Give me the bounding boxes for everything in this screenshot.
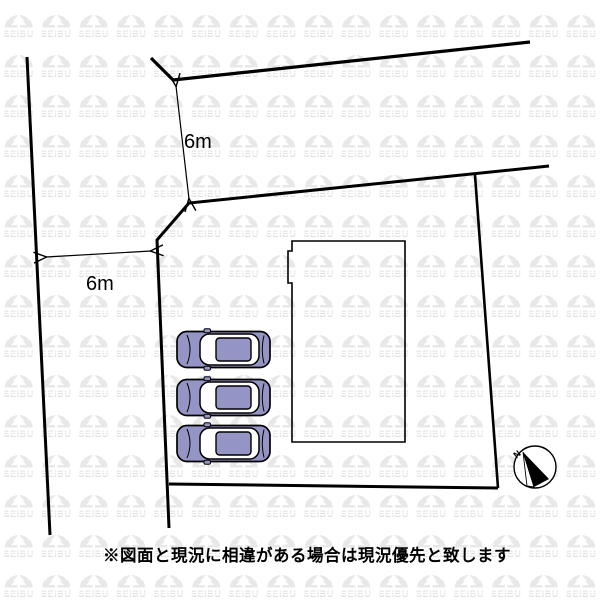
watermark-tile: [490, 175, 524, 200]
watermark-tile: [77, 335, 111, 360]
watermark-tile: [152, 15, 186, 40]
watermark-tile: [152, 295, 186, 320]
watermark-tile: [265, 215, 299, 240]
watermark-tile: [340, 15, 374, 40]
watermark-tile: [302, 415, 336, 440]
watermark-tile: [190, 495, 224, 520]
watermark-tile: [415, 375, 449, 400]
watermark-tile: [490, 55, 524, 80]
watermark-tile: [452, 415, 486, 440]
watermark-tile: [415, 215, 449, 240]
watermark-tile: [40, 575, 74, 600]
watermark-tile: [152, 95, 186, 120]
watermark-tile: [77, 175, 111, 200]
watermark-tile: [2, 15, 36, 40]
watermark-tile: [565, 295, 599, 320]
watermark-tile: [77, 55, 111, 80]
watermark-tile: [2, 335, 36, 360]
watermark-tile: [302, 255, 336, 280]
watermark-tile: [527, 495, 561, 520]
watermark-tile: [40, 215, 74, 240]
watermark-tile: [40, 255, 74, 280]
watermark-tile: [115, 575, 149, 600]
watermark-tile: [490, 575, 524, 600]
watermark-tile: [115, 215, 149, 240]
watermark-tile: [2, 55, 36, 80]
watermark-tile: [2, 175, 36, 200]
watermark-tile: [340, 135, 374, 160]
watermark-tile: [40, 15, 74, 40]
watermark-tile: [565, 15, 599, 40]
watermark-tile: [340, 375, 374, 400]
watermark-tile: [377, 455, 411, 480]
watermark-tile: [452, 15, 486, 40]
watermark-tile: [190, 175, 224, 200]
watermark-tile: [302, 335, 336, 360]
watermark-tile: [452, 575, 486, 600]
watermark-tile: [40, 135, 74, 160]
watermark-tile: [415, 575, 449, 600]
watermark-tile: [565, 335, 599, 360]
watermark-tile: [415, 295, 449, 320]
site-plan-page: SEIBU: [0, 0, 600, 600]
watermark-tile: [2, 375, 36, 400]
watermark-tile: [77, 415, 111, 440]
watermark-tile: [265, 95, 299, 120]
disclaimer-note: ※図面と現況に相違がある場合は現況優先と致します: [103, 545, 511, 565]
watermark-tile: [565, 55, 599, 80]
watermark-tile: [190, 215, 224, 240]
watermark-tile: [377, 215, 411, 240]
watermark-tile: [527, 175, 561, 200]
watermark-tile: [452, 335, 486, 360]
watermark-tile: [265, 495, 299, 520]
dimension-label-left-road: 6m: [86, 273, 114, 295]
watermark-tile: [115, 495, 149, 520]
watermark-tile: [2, 295, 36, 320]
watermark-tile: [490, 215, 524, 240]
watermark-tile: [527, 335, 561, 360]
watermark-layer: [2, 15, 598, 600]
watermark-tile: [2, 575, 36, 600]
watermark-tile: [115, 415, 149, 440]
watermark-tile: [527, 55, 561, 80]
watermark-tile: [152, 575, 186, 600]
watermark-tile: [340, 295, 374, 320]
watermark-tile: [490, 95, 524, 120]
watermark-tile: [565, 495, 599, 520]
watermark-tile: [40, 95, 74, 120]
watermark-tile: [565, 95, 599, 120]
lot-south-boundary: [169, 484, 498, 488]
watermark-tile: [490, 255, 524, 280]
watermark-tile: [377, 175, 411, 200]
watermark-tile: [565, 175, 599, 200]
watermark-tile: [527, 135, 561, 160]
watermark-tile: [415, 55, 449, 80]
watermark-tile: [415, 415, 449, 440]
watermark-tile: [340, 95, 374, 120]
watermark-tile: [40, 535, 74, 560]
watermark-tile: [115, 135, 149, 160]
watermark-tile: [527, 295, 561, 320]
compass: N: [511, 446, 556, 488]
watermark-tile: [340, 215, 374, 240]
watermark-tile: [190, 575, 224, 600]
watermark-tile: [452, 295, 486, 320]
watermark-tile: [227, 495, 261, 520]
watermark-tile: [565, 455, 599, 480]
watermark-tile: [77, 495, 111, 520]
watermark-tile: [415, 335, 449, 360]
watermark-tile: [115, 175, 149, 200]
watermark-tile: [490, 335, 524, 360]
watermark-tile: [452, 55, 486, 80]
watermark-tile: [340, 575, 374, 600]
watermark-tile: [490, 15, 524, 40]
watermark-tile: [527, 575, 561, 600]
watermark-tile: [2, 455, 36, 480]
watermark-tile: [377, 15, 411, 40]
watermark-tile: [227, 15, 261, 40]
watermark-tile: [302, 375, 336, 400]
site-plan-canvas: SEIBU: [0, 0, 600, 600]
watermark-tile: [302, 15, 336, 40]
watermark-tile: [302, 175, 336, 200]
watermark-tile: [302, 575, 336, 600]
watermark-tile: [2, 415, 36, 440]
watermark-tile: [527, 255, 561, 280]
car-1: [177, 329, 270, 371]
watermark-tile: [340, 255, 374, 280]
watermark-tile: [190, 95, 224, 120]
car-3: [177, 423, 270, 465]
watermark-tile: [377, 135, 411, 160]
watermark-tile: [40, 335, 74, 360]
watermark-tile: [565, 415, 599, 440]
watermark-tile: [565, 215, 599, 240]
watermark-tile: [565, 375, 599, 400]
watermark-tile: [115, 255, 149, 280]
watermark-tile: [565, 535, 599, 560]
watermark-tile: [77, 295, 111, 320]
watermark-tile: [77, 135, 111, 160]
watermark-tile: [152, 135, 186, 160]
watermark-tile: [227, 255, 261, 280]
watermark-tile: [77, 455, 111, 480]
watermark-tile: [2, 495, 36, 520]
car-2: [177, 377, 270, 419]
watermark-tile: [377, 495, 411, 520]
watermark-tile: [527, 15, 561, 40]
watermark-tile: [40, 175, 74, 200]
watermark-tile: [190, 15, 224, 40]
watermark-tile: [2, 535, 36, 560]
watermark-tile: [415, 495, 449, 520]
watermark-tile: [415, 15, 449, 40]
watermark-tile: [527, 95, 561, 120]
watermark-tile: [227, 575, 261, 600]
watermark-tile: [527, 375, 561, 400]
watermark-tile: [452, 95, 486, 120]
watermark-tile: [490, 495, 524, 520]
watermark-tile: [265, 455, 299, 480]
watermark-tile: [265, 575, 299, 600]
watermark-tile: [527, 415, 561, 440]
watermark-tile: [340, 455, 374, 480]
watermark-tile: [565, 255, 599, 280]
watermark-tile: [115, 295, 149, 320]
watermark-tile: [227, 215, 261, 240]
watermark-tile: [227, 135, 261, 160]
watermark-tile: [115, 15, 149, 40]
watermark-tile: [452, 175, 486, 200]
watermark-tile: [302, 455, 336, 480]
watermark-tile: [302, 215, 336, 240]
watermark-tile: [377, 575, 411, 600]
watermark-tile: [340, 415, 374, 440]
watermark-tile: [77, 215, 111, 240]
watermark-tile: [115, 55, 149, 80]
watermark-tile: [452, 455, 486, 480]
watermark-tile: [565, 135, 599, 160]
watermark-tile: [40, 455, 74, 480]
watermark-tile: [415, 135, 449, 160]
watermark-tile: [115, 375, 149, 400]
watermark-tile: [415, 255, 449, 280]
watermark-tile: [265, 135, 299, 160]
watermark-tile: [302, 295, 336, 320]
watermark-tile: [152, 175, 186, 200]
watermark-tile: [377, 95, 411, 120]
watermark-tile: [227, 95, 261, 120]
watermark-tile: [452, 495, 486, 520]
watermark-tile: [115, 455, 149, 480]
watermark-tile: [40, 495, 74, 520]
watermark-tile: [40, 55, 74, 80]
watermark-tile: [190, 295, 224, 320]
watermark-tile: [265, 15, 299, 40]
watermark-tile: [227, 295, 261, 320]
watermark-tile: [77, 95, 111, 120]
watermark-tile: [115, 335, 149, 360]
dimension-label-top-road: 6m: [184, 131, 212, 153]
watermark-tile: [302, 135, 336, 160]
watermark-tile: [302, 495, 336, 520]
watermark-tile: [452, 375, 486, 400]
watermark-tile: [190, 255, 224, 280]
watermark-tile: [302, 95, 336, 120]
watermark-tile: [77, 375, 111, 400]
watermark-tile: [77, 575, 111, 600]
watermark-tile: [490, 375, 524, 400]
watermark-tile: [527, 215, 561, 240]
watermark-tile: [265, 255, 299, 280]
watermark-tile: [527, 535, 561, 560]
watermark-tile: [40, 295, 74, 320]
watermark-tile: [265, 295, 299, 320]
watermark-tile: [2, 215, 36, 240]
watermark-tile: [340, 495, 374, 520]
watermark-tile: [415, 455, 449, 480]
watermark-tile: [490, 135, 524, 160]
watermark-tile: [77, 15, 111, 40]
watermark-tile: [565, 575, 599, 600]
watermark-tile: [415, 95, 449, 120]
watermark-tile: [452, 135, 486, 160]
watermark-tile: [115, 95, 149, 120]
watermark-tile: [340, 335, 374, 360]
watermark-tile: [2, 255, 36, 280]
watermark-tile: [490, 295, 524, 320]
